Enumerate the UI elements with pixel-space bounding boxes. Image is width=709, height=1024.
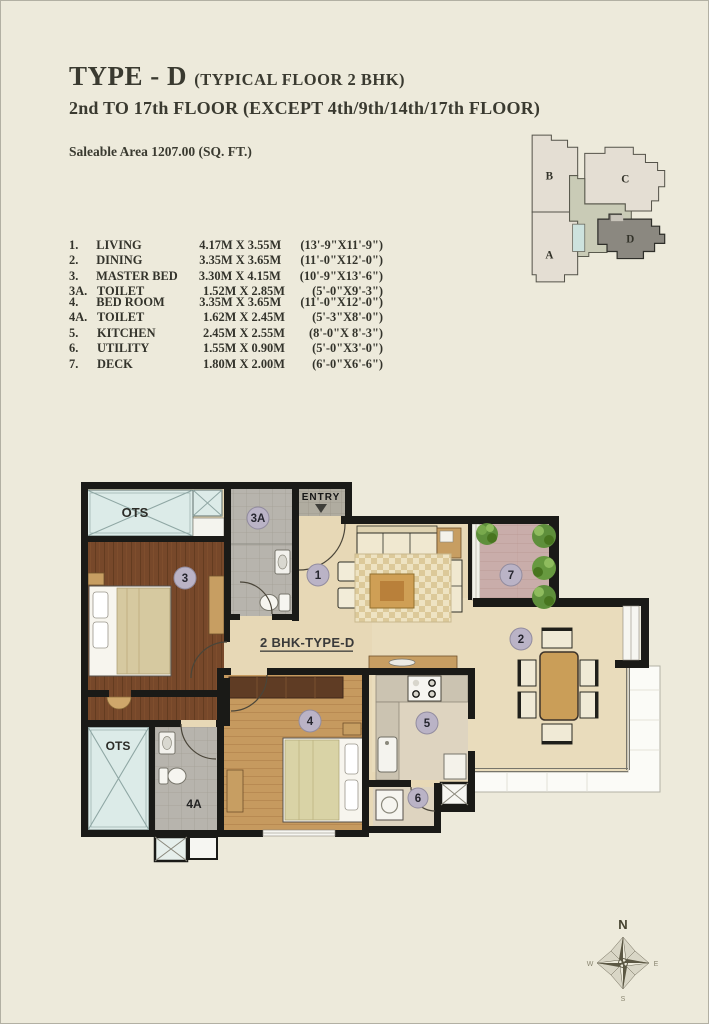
title-paren: (TYPICAL FLOOR 2 BHK) bbox=[194, 70, 405, 89]
room-name: MASTER BED bbox=[96, 269, 199, 284]
room-name: TOILET bbox=[97, 310, 203, 325]
table-row: 2.DINING3.35M X 3.65M(11'-0"X12'-0") bbox=[69, 253, 383, 268]
room-label-bed: 4 bbox=[299, 710, 321, 732]
title-line2: 2nd TO 17th FLOOR (EXCEPT 4th/9th/14th/1… bbox=[69, 98, 540, 119]
entry-area: ENTRY bbox=[299, 489, 345, 516]
svg-text:1: 1 bbox=[315, 570, 322, 582]
shaft-ledge bbox=[193, 518, 224, 538]
room-imperial: (5'-3"X8'-0") bbox=[307, 310, 383, 325]
plant-icon bbox=[532, 556, 556, 580]
coffee-table-icon bbox=[370, 574, 414, 608]
room-number: 3. bbox=[69, 269, 96, 284]
compass-n-label: N bbox=[618, 917, 627, 932]
room-name: LIVING bbox=[96, 238, 199, 253]
washbasin-icon bbox=[275, 550, 290, 574]
toilet-icon bbox=[260, 594, 290, 611]
room-metric: 3.35M X 3.65M bbox=[199, 295, 300, 310]
key-plan: B C A D bbox=[520, 123, 692, 295]
room-metric: 4.17M X 3.55M bbox=[199, 238, 300, 253]
svg-text:3: 3 bbox=[182, 573, 188, 585]
room-name: UTILITY bbox=[97, 341, 203, 356]
ots-top-label: OTS bbox=[122, 505, 149, 520]
room-metric: 3.30M X 4.15M bbox=[199, 269, 300, 284]
living-room bbox=[338, 526, 462, 622]
room-name: KITCHEN bbox=[97, 326, 203, 341]
stove-icon bbox=[408, 676, 441, 701]
table-row: 4.BED ROOM3.35M X 3.65M(11'-0"X12'-0") bbox=[69, 295, 383, 310]
room-imperial: (11'-0"X12'-0") bbox=[300, 253, 383, 268]
compass-rose: N W E S bbox=[583, 909, 663, 1019]
toilet-icon bbox=[159, 768, 186, 784]
room-number: 1. bbox=[69, 238, 96, 253]
table-row: 4A.TOILET1.62M X 2.45M(5'-3"X8'-0") bbox=[69, 310, 383, 325]
ots-top-shaft: OTS bbox=[87, 490, 224, 538]
room-metric: 1.62M X 2.45M bbox=[203, 310, 307, 325]
title-main: TYPE - D bbox=[69, 61, 187, 91]
page-title: TYPE - D (TYPICAL FLOOR 2 BHK) bbox=[69, 61, 540, 95]
room-label-utility: 6 bbox=[408, 788, 428, 808]
armchair-icon bbox=[338, 588, 357, 608]
svg-text:2 BHK-TYPE-D: 2 BHK-TYPE-D bbox=[260, 635, 355, 650]
building-d-notch bbox=[611, 215, 623, 221]
room-label-deck: 7 bbox=[500, 564, 522, 586]
room-metric: 3.35M X 3.65M bbox=[199, 253, 300, 268]
room-imperial: (8'-0"X 8'-3") bbox=[307, 326, 383, 341]
plant-icon bbox=[532, 585, 556, 609]
study-table-icon bbox=[227, 770, 243, 812]
svg-text:6: 6 bbox=[415, 793, 421, 805]
table-row: 7.DECK1.80M X 2.00M(6'-0"X6'-6") bbox=[69, 357, 383, 372]
toilet-4a-label: 4A bbox=[186, 797, 202, 811]
building-a-label: A bbox=[545, 250, 553, 262]
table-row: 1.LIVING4.17M X 3.55M(13'-9"X11'-9") bbox=[69, 238, 383, 253]
compass-e-label: E bbox=[654, 961, 659, 968]
dining-table-icon bbox=[540, 652, 578, 720]
room-name: DECK bbox=[97, 357, 203, 372]
room-number: 6. bbox=[69, 341, 97, 356]
room-number: 2. bbox=[69, 253, 96, 268]
svg-text:3A: 3A bbox=[251, 513, 266, 525]
plant-icon bbox=[532, 524, 556, 548]
svg-text:7: 7 bbox=[508, 570, 514, 582]
compass-star-icon bbox=[597, 937, 649, 989]
room-label-kitchen: 5 bbox=[416, 712, 438, 734]
building-c-label: C bbox=[621, 174, 629, 186]
hall-counter bbox=[369, 656, 457, 669]
sink-icon bbox=[378, 737, 397, 772]
building-b-label: B bbox=[546, 171, 554, 183]
dresser-icon bbox=[209, 576, 224, 634]
bedroom-2 bbox=[224, 675, 363, 830]
armchair-icon bbox=[338, 562, 357, 581]
svg-text:4: 4 bbox=[307, 716, 314, 728]
room-number: 5. bbox=[69, 326, 97, 341]
room-dimension-table: 1.LIVING4.17M X 3.55M(13'-9"X11'-9") 2.D… bbox=[69, 238, 383, 372]
room-imperial: (6'-0"X6'-6") bbox=[307, 357, 383, 372]
svg-text:5: 5 bbox=[424, 718, 431, 730]
table-row: 3.MASTER BED3.30M X 4.15M(10'-9"X13'-6") bbox=[69, 269, 383, 284]
saleable-area: Saleable Area 1207.00 (SQ. FT.) bbox=[69, 144, 540, 160]
wardrobe-icon bbox=[229, 677, 343, 698]
room-imperial: (5'-0"X3'-0") bbox=[307, 341, 383, 356]
unit-type-label: 2 BHK-TYPE-D bbox=[260, 635, 355, 652]
room-label-living: 1 bbox=[307, 564, 329, 586]
svg-text:2: 2 bbox=[518, 634, 524, 646]
lift-shaft bbox=[573, 224, 585, 251]
table-row: 6.UTILITY1.55M X 0.90M(5'-0"X3'-0") bbox=[69, 341, 383, 356]
building-a-shape bbox=[532, 212, 578, 282]
room-imperial: (10'-9"X13'-6") bbox=[300, 269, 383, 284]
nightstand-icon bbox=[343, 723, 361, 735]
washing-machine-icon bbox=[376, 790, 403, 820]
ots-bottom-shaft: OTS bbox=[88, 727, 149, 830]
building-d-label: D bbox=[626, 233, 634, 245]
compass-w-label: W bbox=[587, 961, 594, 968]
washbasin-icon bbox=[159, 732, 175, 754]
table-row: 5.KITCHEN2.45M X 2.55M(8'-0"X 8'-3") bbox=[69, 326, 383, 341]
room-name: DINING bbox=[96, 253, 199, 268]
room-imperial: (11'-0"X12'-0") bbox=[300, 295, 383, 310]
brochure-page: TYPE - D (TYPICAL FLOOR 2 BHK) 2nd TO 17… bbox=[0, 0, 709, 1024]
compass-s-label: S bbox=[621, 996, 626, 1003]
room-metric: 1.80M X 2.00M bbox=[203, 357, 307, 372]
room-metric: 1.55M X 0.90M bbox=[203, 341, 307, 356]
ots-bottom-label: OTS bbox=[106, 739, 131, 753]
header: TYPE - D (TYPICAL FLOOR 2 BHK) 2nd TO 17… bbox=[69, 61, 540, 160]
room-number: 4. bbox=[69, 295, 96, 310]
room-metric: 2.45M X 2.55M bbox=[203, 326, 307, 341]
plant-icon bbox=[476, 523, 498, 545]
room-label-dining: 2 bbox=[510, 628, 532, 650]
room-label-toilet-3a: 3A bbox=[247, 507, 269, 529]
fridge-icon bbox=[444, 754, 466, 779]
room-name: BED ROOM bbox=[96, 295, 199, 310]
room-number: 7. bbox=[69, 357, 97, 372]
room-imperial: (13'-9"X11'-9") bbox=[300, 238, 383, 253]
exterior-patch bbox=[441, 810, 477, 828]
floor-plan: OTS ENTRY bbox=[77, 480, 701, 866]
entry-label: ENTRY bbox=[302, 492, 341, 503]
room-label-master-bed: 3 bbox=[174, 567, 196, 589]
bed-icon bbox=[88, 573, 171, 676]
bed-icon bbox=[283, 738, 363, 822]
room-number: 4A. bbox=[69, 310, 97, 325]
